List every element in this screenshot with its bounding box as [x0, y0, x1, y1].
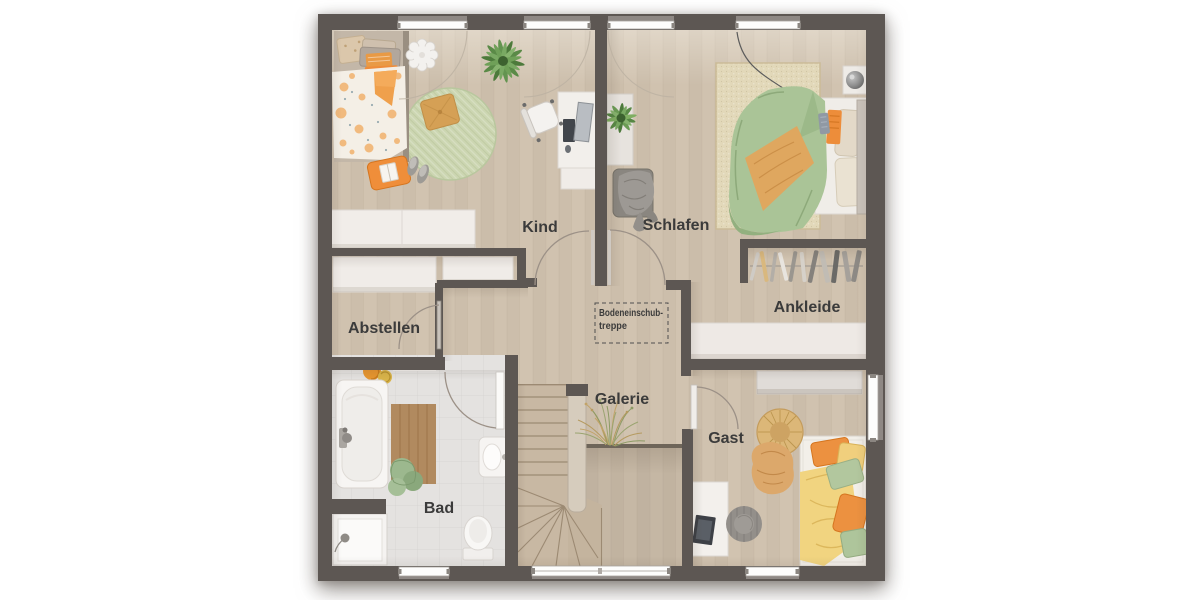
svg-text:Galerie: Galerie [595, 391, 649, 408]
svg-text:Ankleide: Ankleide [774, 299, 841, 316]
svg-text:Kind: Kind [522, 219, 558, 236]
svg-text:Bad: Bad [424, 500, 454, 517]
svg-text:treppe: treppe [599, 320, 627, 332]
svg-text:Bodeneinschub-: Bodeneinschub- [599, 307, 663, 319]
svg-text:Abstellen: Abstellen [348, 320, 420, 337]
svg-text:Gast: Gast [708, 430, 744, 447]
svg-text:Schlafen: Schlafen [643, 217, 710, 234]
